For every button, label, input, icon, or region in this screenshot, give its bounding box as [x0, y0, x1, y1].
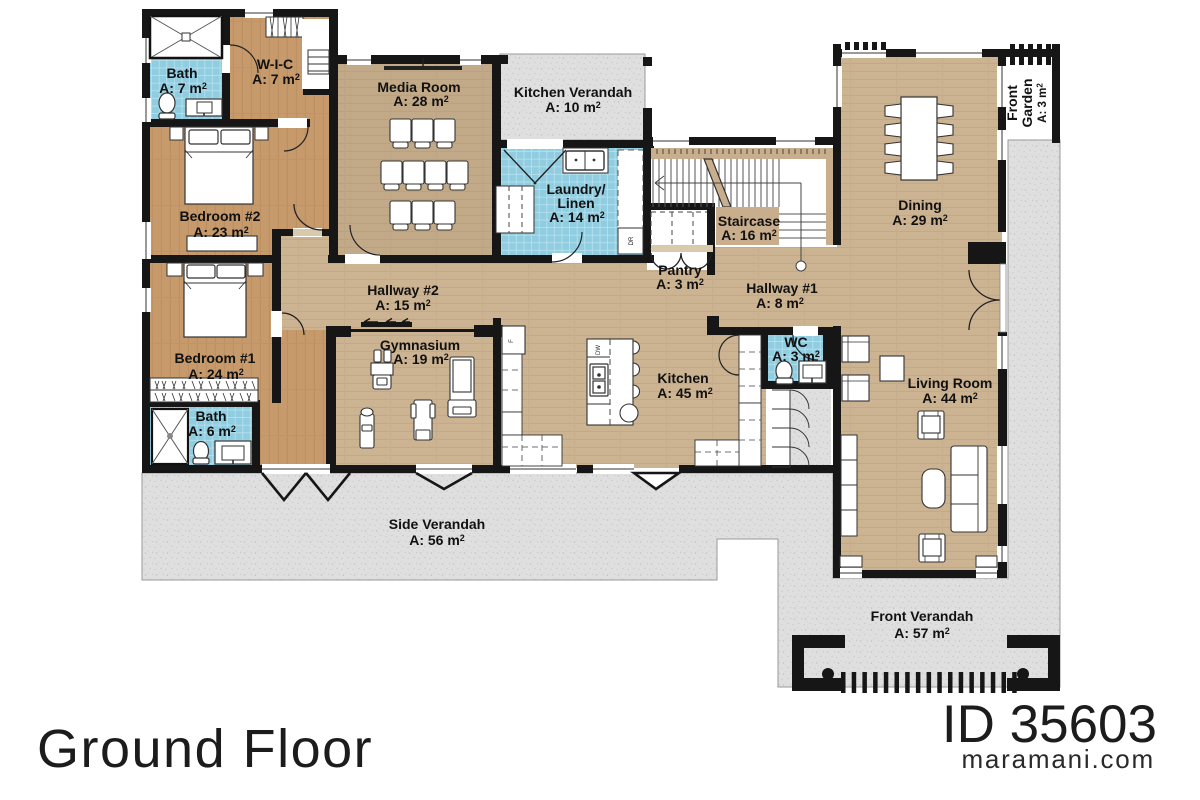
svg-text:Hallway #2: Hallway #2	[367, 282, 439, 298]
svg-text:Hallway #1: Hallway #1	[746, 280, 818, 296]
svg-text:A: 7 m2: A: 7 m2	[159, 80, 207, 96]
svg-text:Garden: Garden	[1019, 78, 1035, 127]
svg-text:DR: DR	[629, 236, 635, 245]
svg-text:Bath: Bath	[166, 65, 197, 81]
svg-text:A: 29 m2: A: 29 m2	[892, 212, 948, 228]
svg-text:A: 24 m2: A: 24 m2	[188, 366, 244, 382]
svg-text:A: 56 m2: A: 56 m2	[409, 532, 465, 548]
svg-text:Ground Floor: Ground Floor	[37, 719, 373, 779]
svg-text:Front Verandah: Front Verandah	[871, 608, 974, 624]
svg-text:A: 15 m2: A: 15 m2	[375, 297, 431, 313]
svg-text:Bath: Bath	[195, 408, 226, 424]
svg-text:A: 10 m2: A: 10 m2	[545, 99, 601, 115]
svg-text:Side Verandah: Side Verandah	[389, 516, 485, 532]
svg-text:A: 23 m2: A: 23 m2	[193, 224, 249, 240]
svg-text:Dining: Dining	[898, 197, 942, 213]
svg-text:A: 19 m2: A: 19 m2	[393, 351, 449, 367]
svg-text:maramani.com: maramani.com	[961, 744, 1155, 774]
svg-text:Kitchen Verandah: Kitchen Verandah	[514, 84, 632, 100]
svg-text:Front: Front	[1004, 85, 1020, 121]
svg-text:DW: DW	[596, 345, 602, 355]
svg-text:Kitchen: Kitchen	[657, 370, 708, 386]
svg-text:A: 6 m2: A: 6 m2	[188, 423, 236, 439]
svg-text:Bedroom #2: Bedroom #2	[180, 208, 261, 224]
svg-text:A: 3 m2: A: 3 m2	[656, 276, 704, 292]
svg-text:A: 8 m2: A: 8 m2	[756, 295, 804, 311]
svg-text:Bedroom #1: Bedroom #1	[175, 350, 256, 366]
svg-text:Living Room: Living Room	[908, 375, 993, 391]
svg-text:W-I-C: W-I-C	[257, 56, 293, 72]
svg-text:A: 57 m2: A: 57 m2	[894, 625, 950, 641]
svg-text:A: 28 m2: A: 28 m2	[393, 93, 449, 109]
svg-text:A: 3 m2: A: 3 m2	[772, 348, 820, 364]
svg-text:A: 16 m2: A: 16 m2	[721, 227, 777, 243]
svg-text:A: 3 m2: A: 3 m2	[1036, 83, 1050, 123]
svg-text:A: 45 m2: A: 45 m2	[657, 385, 713, 401]
svg-text:A: 7 m2: A: 7 m2	[252, 71, 300, 87]
svg-text:A: 14 m2: A: 14 m2	[549, 209, 605, 225]
svg-text:F: F	[509, 339, 515, 343]
svg-text:A: 44 m2: A: 44 m2	[922, 390, 978, 406]
